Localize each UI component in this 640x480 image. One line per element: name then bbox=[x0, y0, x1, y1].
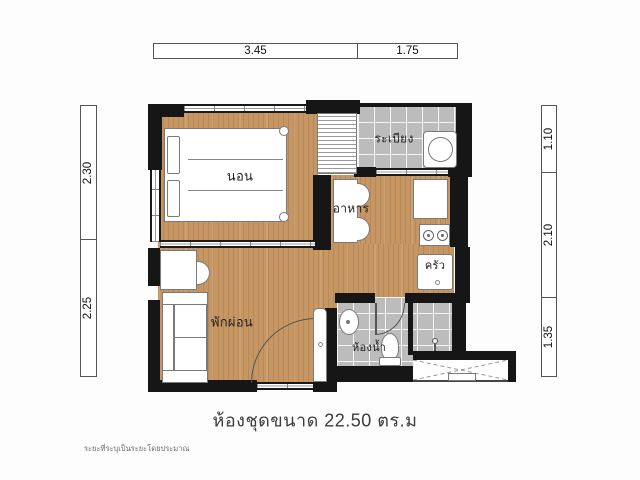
shower-stem-icon bbox=[434, 344, 436, 351]
faucet-icon bbox=[346, 320, 350, 324]
stove-burner-icon bbox=[423, 230, 434, 241]
wall-top-mid bbox=[306, 100, 360, 114]
wall-bedroom-dining bbox=[313, 175, 331, 250]
wall-right-upper bbox=[456, 103, 472, 170]
ac-unit-pad bbox=[448, 373, 476, 381]
kitchen-label: ครัว bbox=[425, 256, 445, 274]
bedroom-label: นอน bbox=[227, 166, 253, 187]
sofa-back bbox=[162, 304, 174, 371]
bedroom-partition bbox=[160, 240, 315, 248]
wall-left-3 bbox=[148, 300, 160, 390]
balcony-label: ระเบียง bbox=[374, 130, 413, 149]
pillow bbox=[167, 180, 180, 217]
dim-top-2: 1.75 bbox=[357, 43, 458, 59]
bathroom-label: ห้องน้ำ bbox=[352, 338, 386, 356]
dim-top-1: 3.45 bbox=[153, 43, 358, 59]
dim-right-3: 1.35 bbox=[541, 297, 557, 377]
wall-left-1 bbox=[148, 104, 162, 170]
dim-right-1: 1.10 bbox=[541, 105, 557, 173]
sink-drain-icon bbox=[435, 280, 440, 285]
wardrobe bbox=[317, 113, 357, 174]
sofa-cushion bbox=[174, 337, 207, 371]
dim-right-2: 2.10 bbox=[541, 172, 557, 298]
sofa-cushion bbox=[174, 304, 207, 338]
bedside-knob bbox=[279, 212, 289, 222]
wall-balcony-left bbox=[354, 167, 376, 177]
bathroom-door-leaf bbox=[375, 303, 377, 335]
bedside-knob bbox=[279, 126, 289, 136]
entrance-threshold bbox=[257, 382, 313, 390]
door-knob-icon bbox=[318, 342, 323, 347]
side-table bbox=[160, 250, 197, 290]
dim-left-1: 2.30 bbox=[80, 105, 97, 240]
wall-right-mid bbox=[455, 247, 470, 303]
wall-left-2 bbox=[148, 248, 160, 286]
ledge-wall-top bbox=[413, 351, 516, 360]
wall-bath-right bbox=[452, 297, 466, 355]
bed-sheet-line bbox=[188, 159, 283, 160]
wall-kitchen-right bbox=[450, 175, 468, 247]
bed bbox=[164, 128, 287, 222]
wall-bath-top-left bbox=[335, 293, 375, 303]
dim-left-2: 2.25 bbox=[80, 239, 97, 377]
bed-sheet-line bbox=[188, 190, 283, 191]
wall-shower-partition bbox=[408, 297, 413, 355]
wall-bath-bottom bbox=[325, 366, 417, 382]
balcony-parapet bbox=[358, 103, 458, 107]
stove-burner-icon bbox=[437, 230, 448, 241]
living-label: พักผ่อน bbox=[211, 312, 253, 333]
pillow bbox=[167, 136, 180, 174]
plan-title: ห้องชุดขนาด 22.50 ตร.ม bbox=[212, 406, 417, 435]
ledge-wall-right bbox=[508, 351, 516, 382]
dining-label: อาหาร bbox=[333, 200, 370, 219]
bedroom-window bbox=[184, 104, 308, 113]
washing-machine-drum bbox=[428, 137, 453, 162]
floor-plan: 3.45 1.75 2.30 2.25 1.10 2.10 1.35 bbox=[0, 0, 640, 480]
plan-footnote: ระยะที่ระบุเป็นระยะโดยประมาณ bbox=[84, 443, 189, 455]
fridge bbox=[413, 179, 448, 219]
bedroom-side-window bbox=[150, 170, 161, 242]
balcony-glass-door bbox=[376, 168, 450, 176]
toilet-tank bbox=[379, 357, 401, 366]
